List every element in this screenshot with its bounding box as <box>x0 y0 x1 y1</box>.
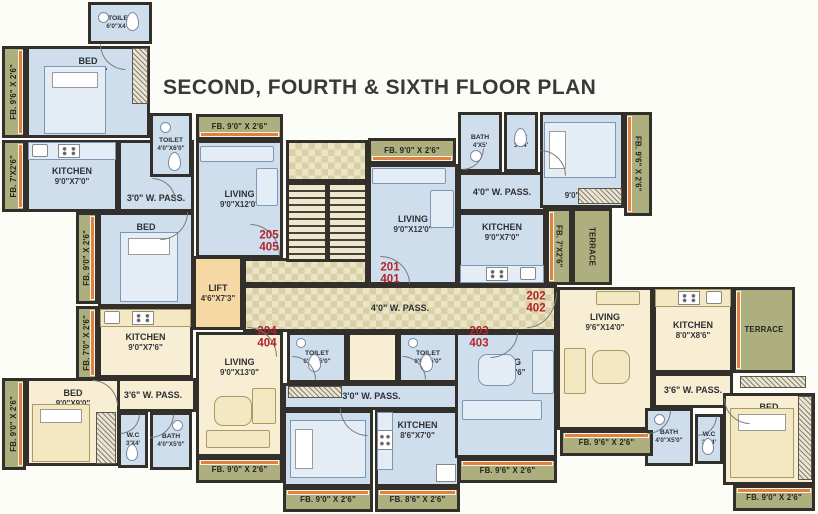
unit-number-line: 404 <box>257 338 276 350</box>
room-label: FB. 9'0" X 2'6" <box>746 493 802 502</box>
window-strip <box>91 311 94 375</box>
wc-furniture <box>126 12 139 31</box>
window-strip <box>380 491 455 494</box>
unit-number-202: 202402 <box>526 291 545 314</box>
room-dimensions: 9'0"X13'0" <box>220 368 259 378</box>
room-label: BATH <box>660 429 678 437</box>
hatch-furniture <box>288 386 342 398</box>
sofa-furniture <box>252 388 276 424</box>
window-strip <box>628 117 631 211</box>
table-furniture <box>592 350 630 384</box>
room-label: KITCHEN <box>398 420 438 431</box>
room-area-52 <box>286 140 368 182</box>
room-area-53 <box>286 182 368 262</box>
window-strip <box>19 383 22 465</box>
room-label: TOILET <box>159 137 183 145</box>
room-label: FB. 9'0" X 2'6" <box>82 230 91 286</box>
window-strip <box>738 489 810 492</box>
room-fb-9-6-x-2-6-38: FB. 9'6" X 2'6" <box>624 112 652 216</box>
room-area-22 <box>347 332 398 383</box>
sofa-furniture <box>462 400 542 420</box>
window-strip <box>565 434 648 437</box>
room-fb-9-0-x-2-6-17: FB. 9'0" X 2'6" <box>2 378 26 470</box>
hatch-furniture <box>578 188 622 204</box>
table-furniture <box>214 396 252 426</box>
window-strip <box>201 461 278 464</box>
sofa-furniture <box>532 350 554 394</box>
room-label: KITCHEN <box>482 222 522 233</box>
bed-furniture <box>44 66 106 134</box>
unit-number-line: 204 <box>257 326 276 338</box>
floor-plan: SECOND, FOURTH & SIXTH FLOOR PLAN TOILET… <box>0 0 818 514</box>
basin-furniture <box>98 12 109 23</box>
room-label: LIVING <box>590 312 620 323</box>
room-fb-9-6-x-2-6-30: FB. 9'6" X 2'6" <box>458 458 557 483</box>
room-dimensions: 9'0"X7'6" <box>128 343 163 353</box>
room-toilet-0: TOILET6'0"X4'0" <box>88 2 152 44</box>
room-label: LIVING <box>398 214 428 225</box>
window-strip <box>91 217 94 299</box>
room-fb-9-0-x-2-6-27: FB. 9'0" X 2'6" <box>283 487 373 512</box>
window-strip <box>373 157 451 160</box>
hatch-furniture <box>132 48 148 104</box>
bed-furniture <box>32 404 90 462</box>
room-3-6-w-pass-15: 3'6" W. PASS. <box>110 378 196 412</box>
unit-number-line: 403 <box>469 338 488 350</box>
basin-furniture <box>296 338 306 348</box>
stove-furniture <box>486 267 508 281</box>
sofa-furniture <box>256 168 278 206</box>
table-furniture <box>478 354 516 386</box>
room-label: FB. 9'0" X 2'6" <box>212 122 268 131</box>
window-strip <box>737 292 740 368</box>
room-fb-8-6-x-2-6-28: FB. 8'6" X 2'6" <box>375 487 460 512</box>
sink-furniture <box>104 311 120 324</box>
room-4-0-w-pass-35: 4'0" W. PASS. <box>458 172 546 212</box>
unit-number-line: 203 <box>469 326 488 338</box>
room-label: KITCHEN <box>673 320 713 331</box>
unit-number-line: 401 <box>380 274 399 286</box>
room-fb-9-6-x-2-6-49: FB. 9'6" X 2'6" <box>560 430 653 456</box>
basin-furniture <box>408 338 418 348</box>
room-4-0-w-pass-50: 4'0" W. PASS. <box>243 285 557 332</box>
unit-number-201: 201401 <box>380 262 399 285</box>
window-strip <box>550 213 553 280</box>
hatch-furniture <box>96 412 116 464</box>
room-lift-12: LIFT4'6"X7'3" <box>193 256 243 330</box>
room-label: FB. 9'6" X 2'6" <box>579 438 635 447</box>
room-label: BATH <box>162 433 180 441</box>
room-fb-7-x2-6-39: FB. 7'X2'6" <box>546 208 572 285</box>
sofa-furniture <box>596 291 640 305</box>
room-dimensions: 4'6"X7'3" <box>201 294 236 304</box>
room-fb-9-0-x-2-6-31: FB. 9'0" X 2'6" <box>368 138 456 164</box>
unit-number-205: 205405 <box>259 230 278 253</box>
room-label: FB. 7'X2'6" <box>9 155 18 198</box>
room-fb-9-0-x-2-6-48: FB. 9'0" X 2'6" <box>733 485 815 511</box>
wc-furniture <box>514 128 527 147</box>
room-label: W.C <box>127 432 140 440</box>
wc-furniture <box>126 444 138 461</box>
unit-number-203: 203403 <box>469 326 488 349</box>
sofa-furniture <box>430 190 454 228</box>
unit-number-line: 205 <box>259 230 278 242</box>
sofa-furniture <box>372 168 446 184</box>
window-strip <box>201 133 278 136</box>
room-label: FB. 9'6" X 2'6" <box>633 136 642 192</box>
room-label: 3'6" W. PASS. <box>124 390 182 401</box>
stove-furniture <box>132 311 154 325</box>
room-label: LIVING <box>224 357 254 368</box>
window-strip <box>19 145 22 207</box>
unit-number-line: 201 <box>380 262 399 274</box>
room-label: FB. 7'X2'6" <box>554 225 563 268</box>
room-label: 4'0" W. PASS. <box>371 303 429 314</box>
sink-furniture <box>32 144 48 157</box>
unit-number-line: 202 <box>526 291 545 303</box>
room-label: FB. 9'0" X 2'6" <box>384 146 440 155</box>
room-dimensions: 4'0"X5'0" <box>655 437 682 445</box>
room-terrace-43: TERRACE <box>733 287 795 373</box>
hatch-furniture <box>740 376 806 388</box>
unit-number-line: 405 <box>259 242 278 254</box>
room-label: FB. 9'6" X 2'6" <box>480 466 536 475</box>
room-label: 3'6" W. PASS. <box>664 385 722 396</box>
hatch-furniture <box>798 396 812 480</box>
room-label: FB. 8'6" X 2'6" <box>390 495 446 504</box>
sofa-furniture <box>206 430 270 448</box>
room-fb-9-0-x-2-6-10: FB. 9'0" X 2'6" <box>76 212 98 304</box>
window-strip <box>463 462 552 465</box>
bed-furniture <box>120 232 178 302</box>
room-label: TERRACE <box>744 325 783 334</box>
sofa-furniture <box>200 146 274 162</box>
basin-furniture <box>172 420 183 431</box>
room-terrace-40: TERRACE <box>572 208 612 285</box>
room-3-6-w-pass-44: 3'6" W. PASS. <box>653 373 733 408</box>
room-dimensions: 4'0"X5'0" <box>157 441 184 449</box>
room-label: 3'0" W. PASS. <box>342 391 400 402</box>
room-area-51 <box>243 258 368 285</box>
plan-title: SECOND, FOURTH & SIXTH FLOOR PLAN <box>163 76 596 100</box>
room-dimensions: 9'0"X7'0" <box>55 177 90 187</box>
room-label: FB. 9'6" X 2'6" <box>9 64 18 120</box>
room-dimensions: 9'0"X12'0" <box>394 225 433 235</box>
fridge-furniture <box>436 464 456 482</box>
room-dimensions: 9'0"X7'0" <box>485 233 520 243</box>
room-label: FB. 7'0" X 2'6" <box>82 315 91 371</box>
room-label: KITCHEN <box>52 166 92 177</box>
room-fb-9-0-x-2-6-7: FB. 9'0" X 2'6" <box>196 114 283 140</box>
stove-furniture <box>678 291 700 305</box>
room-fb-7-x2-6-3: FB. 7'X2'6" <box>2 140 26 212</box>
stove-furniture <box>377 430 393 450</box>
room-label: FB. 9'0" X 2'6" <box>300 495 356 504</box>
room-fb-7-0-x-2-6-11: FB. 7'0" X 2'6" <box>76 306 98 380</box>
sink-furniture <box>520 267 536 280</box>
room-fb-9-6-x-2-6-1: FB. 9'6" X 2'6" <box>2 46 26 138</box>
wc-furniture <box>702 438 714 455</box>
room-label: FB. 9'0" X 2'6" <box>9 396 18 452</box>
sofa-furniture <box>564 348 586 394</box>
room-fb-9-0-x-2-6-20: FB. 9'0" X 2'6" <box>196 457 283 483</box>
room-label: BED <box>63 388 82 399</box>
room-dimensions: 9'0"X12'0" <box>220 200 259 210</box>
room-label: FB. 9'0" X 2'6" <box>212 465 268 474</box>
room-label: BATH <box>471 134 489 142</box>
room-label: LIVING <box>224 189 254 200</box>
wc-furniture <box>168 152 181 171</box>
window-strip <box>19 51 22 133</box>
room-label: 4'0" W. PASS. <box>473 187 531 198</box>
room-dimensions: 4'0"X6'0" <box>157 145 184 153</box>
room-dimensions: 9'6"X14'0" <box>586 323 625 333</box>
room-dimensions: 8'6"X7'0" <box>400 431 435 441</box>
room-dimensions: 8'0"X8'6" <box>676 331 711 341</box>
sink-furniture <box>706 291 722 304</box>
basin-furniture <box>160 122 171 133</box>
room-label: LIFT <box>209 283 228 294</box>
unit-number-204: 204404 <box>257 326 276 349</box>
room-label: TERRACE <box>587 227 596 266</box>
unit-number-line: 402 <box>526 303 545 315</box>
room-label: KITCHEN <box>126 332 166 343</box>
window-strip <box>288 491 368 494</box>
stove-furniture <box>58 144 80 158</box>
